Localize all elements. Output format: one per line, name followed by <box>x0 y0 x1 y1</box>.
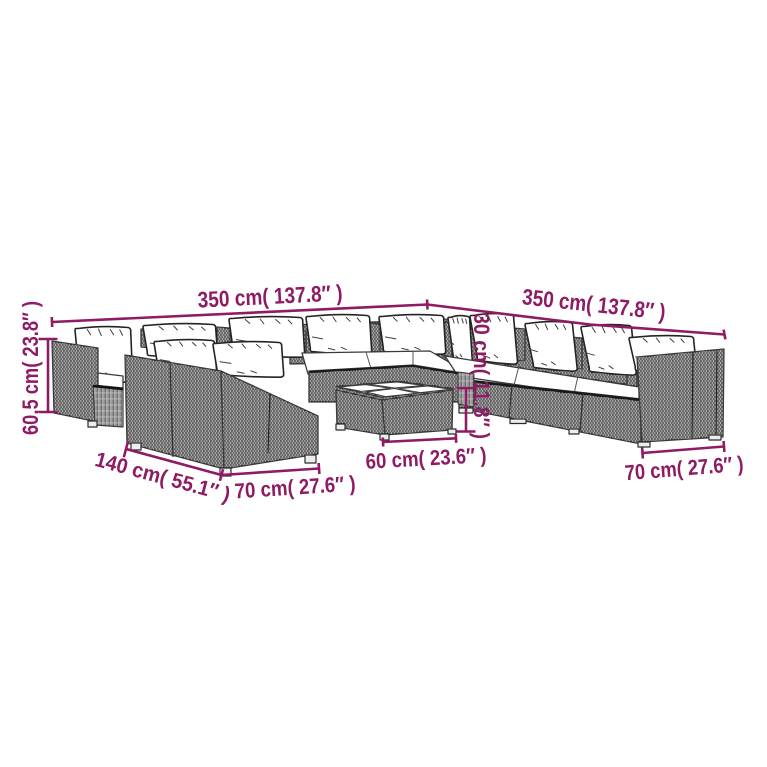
svg-text:60,5 cm( 23.8″ ): 60,5 cm( 23.8″ ) <box>18 301 43 435</box>
svg-text:30 cm( 11.8″ ): 30 cm( 11.8″ ) <box>469 313 494 439</box>
